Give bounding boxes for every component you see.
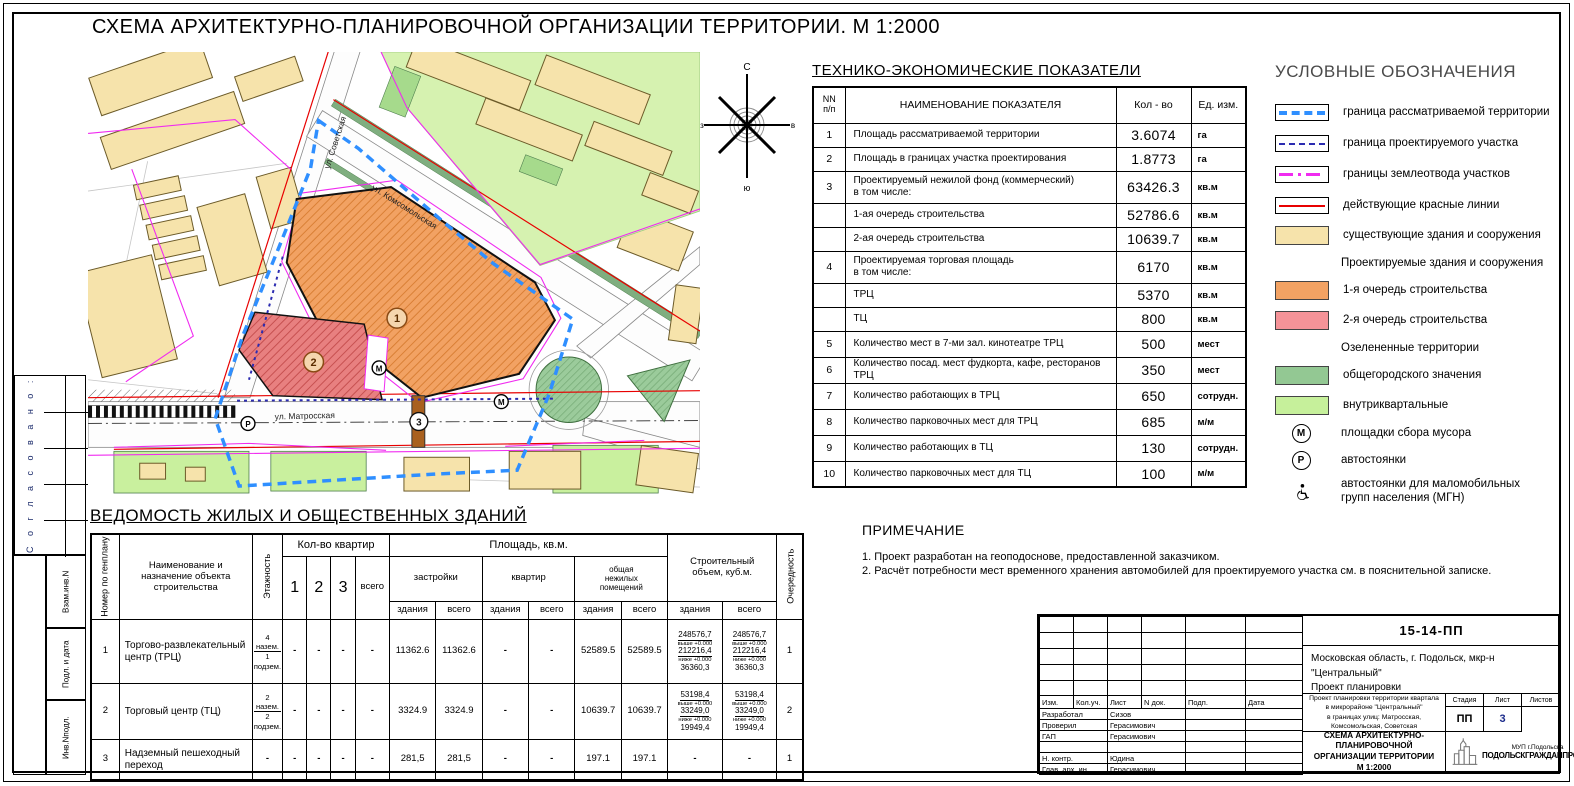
vedomost-table: Номер по генплану Наименование и назначе… [90,533,804,781]
stage-value: ПП [1446,707,1484,732]
sheet-number: 3 [1484,707,1522,732]
existing-buildings-swatch [1275,226,1329,245]
svg-text:2: 2 [311,357,317,369]
svg-text:1: 1 [394,313,400,325]
tep-col-name: НАИМЕНОВАНИЕ ПОКАЗАТЕЛЯ [845,87,1116,123]
plot-boundary-swatch [1275,135,1329,152]
col-floors: Этажность [252,534,282,620]
svg-text:М: М [376,364,383,373]
vedomost-row: 3 Надземный пешеходный переход - ---- 28… [91,740,803,780]
stage-label: Стадия [1446,694,1484,707]
group-area: Площадь, кв.м. [389,534,667,556]
podl-data-box: Подл. и дата [46,628,86,700]
compass-north-label: С [743,62,750,73]
svg-text:М: М [498,398,505,407]
tep-row: 7Количество работающих в ТРЦ650сотрудн. [813,383,1246,409]
stamp-role-row [1040,742,1303,753]
approval-label: С о г л а с о в а н о : [14,376,45,554]
stamp-role-row: Н. контр.Юдина [1040,753,1303,764]
approval-box: С о г л а с о в а н о : [13,375,86,555]
legend-item: 1-я очередь строительства [1275,275,1567,306]
tep-row: 4Проектируемая торговая площадь в том чи… [813,251,1246,283]
sheet-label: Лист [1484,694,1522,707]
organization: МУП г.Подольска ПОДОЛЬСКГРАЖДАНПРОЕКТ [1446,732,1560,772]
group-flats: Кол-во квартир [283,534,390,556]
compass-east-label: в [791,121,795,130]
stage2-swatch [1275,311,1329,330]
sheet-name: СХЕМА АРХИТЕКТУРНО-ПЛАНИРОВОЧНОЙ ОРГАНИЗ… [1303,732,1446,772]
tep-row: 1-ая очередь строительства52786.6кв.м [813,203,1246,227]
stamp-role-row: ПроверилГерасимович [1040,720,1303,731]
org-name-line1: МУП г.Подольска [1482,744,1574,751]
railway [88,406,235,418]
svg-text:3: 3 [416,417,422,428]
legend-item: 2-я очередь строительства [1275,306,1567,335]
stamp-role-row: Глав. арх. ин.Герасимович [1040,764,1303,775]
waste-icon: М [372,361,386,375]
tep-col-num: NN п/п [813,87,845,123]
legend-item: Р автостоянки [1275,447,1567,474]
note-line: 2. Расчёт потребности мест временного хр… [862,564,1562,578]
title-block: Изм.Кол.уч. ЛистN док. Подп.Дата Разрабо… [1037,614,1560,774]
tep-row: 9Количество работающих в ТЦ130сотрудн. [813,435,1246,461]
drawing-sheet: { "sheet": {"title": "СХЕМА АРХИТЕКТУРНО… [0,0,1574,786]
vedomost-title: ВЕДОМОСТЬ ЖИЛЫХ И ОБЩЕСТВЕННЫХ ЗДАНИЙ [90,506,527,526]
tep-row: 3Проектируемый нежилой фонд (коммерчески… [813,171,1246,203]
green-city-swatch [1275,366,1329,385]
margin-empty-column [13,555,46,775]
tep-row: ТРЦ5370кв.м [813,283,1246,307]
parking-icon: Р [241,417,255,431]
approval-grid [44,376,85,554]
doc-number: 15-14-ПП [1303,616,1560,646]
territory-boundary-swatch [1275,104,1329,121]
legend-item: действующие красные линии [1275,190,1567,221]
legend-group-header: Проектируемые здания и сооружения [1275,250,1567,275]
tep-row: ТЦ800кв.м [813,307,1246,331]
group-volume: Строительный объем, куб.м. [668,534,777,602]
tep-table: NN п/п НАИМЕНОВАНИЕ ПОКАЗАТЕЛЯ Кол - во … [812,86,1247,488]
sheets-total [1522,707,1560,732]
legend-item: внутриквартальные [1275,391,1567,420]
col-priority: Очередность [777,534,803,620]
tep-row: 10Количество парковочных мест для ТЦ100м… [813,461,1246,487]
legend-item: М площадки сбора мусора [1275,420,1567,447]
marker-bridge: 3 [410,413,428,431]
legend-title: УСЛОВНЫЕ ОБОЗНАЧЕНИЯ [1275,62,1567,82]
tep-row: 2-ая очередь строительства10639.7кв.м [813,227,1246,251]
waste-icon: М [494,395,508,409]
tep-row: 5Количество мест в 7-ми зал. кинотеатре … [813,331,1246,357]
legend-item: общегородского значения [1275,360,1567,391]
org-name-line2: ПОДОЛЬСКГРАЖДАНПРОЕКТ [1482,751,1574,760]
tep-col-unit: Ед. изм. [1191,87,1246,123]
red-lines-swatch [1275,197,1329,214]
vedomost-header-row: Номер по генплану Наименование и назначе… [91,534,803,556]
street-label-matrosskaya: ул. Матросская [275,410,335,422]
svg-text:Р: Р [245,420,251,429]
marker-stage1: 1 [387,308,407,328]
sheet-title: СХЕМА АРХИТЕКТУРНО-ПЛАНИРОВОЧНОЙ ОРГАНИЗ… [92,16,940,39]
tep-col-qty: Кол - во [1116,87,1191,123]
legend-group-header: Озелененные территории [1275,335,1567,360]
vedomost-row: 1 Торгово-развлекательный центр (ТРЦ) 4 … [91,620,803,684]
tep-title: ТЕХНИКО-ЭКОНОМИЧЕСКИЕ ПОКАЗАТЕЛИ [812,62,1141,79]
sheets-label: Листов [1522,694,1560,707]
note-title: ПРИМЕЧАНИЕ [862,522,1562,538]
compass-west-label: з [700,121,704,130]
project-location: Московская область, г. Подольск, мкр-н "… [1303,646,1560,694]
site-plan-map: 1 2 3 М М Р ул. Советская ул. Комсомольс… [88,52,700,497]
note-section: ПРИМЕЧАНИЕ 1. Проект разработан на геопо… [862,522,1562,578]
compass-rose: С в з ю [700,60,795,195]
note-line: 1. Проект разработан на геоподоснове, пр… [862,550,1562,564]
landplot-swatch [1275,166,1329,183]
legend-item: граница рассматриваемой территории [1275,97,1567,128]
legend-item: существующие здания и сооружения [1275,221,1567,250]
parking-icon: Р [1275,451,1327,470]
tep-row: 6Количество посад. мест фудкорта, кафе, … [813,357,1246,383]
vedomost-row: 2 Торговый центр (ТЦ) 2 назем.2 подзем. … [91,684,803,740]
tep-row: 2Площадь в границах участка проектирован… [813,147,1246,171]
compass-south-label: ю [744,183,751,193]
stamp-role-row: ГАПГерасимович [1040,731,1303,742]
legend-item: границы землеотвода участков [1275,159,1567,190]
vzam-inv-box: Взам.инв.N [46,555,86,628]
green-local-swatch [1275,396,1329,415]
stamp-cols-row: Изм.Кол.уч. ЛистN док. Подп.Дата [1040,696,1303,709]
legend-item: граница проектируемого участка [1275,128,1567,159]
stamp-right: 15-14-ПП Московская область, г. Подольск… [1302,616,1559,772]
waste-icon: М [1275,424,1327,443]
tep-row: 8Количество парковочных мест для ТРЦ685м… [813,409,1246,435]
project-description: Проект планировки территории квартала в … [1303,694,1446,732]
org-logo-icon [1450,735,1480,769]
inv-podl-box: Инв.Nподл. [46,700,86,775]
marker-stage2: 2 [304,352,324,372]
stamp-signature-grid: Изм.Кол.уч. ЛистN док. Подп.Дата Разрабо… [1039,616,1303,775]
legend-item: автостоянки для маломобильных групп насе… [1275,474,1567,510]
tep-row: 1Площадь рассматриваемой территории3.607… [813,123,1246,147]
stage1-swatch [1275,281,1329,300]
col-genplan-num: Номер по генплану [91,534,119,620]
wheelchair-icon [1275,483,1327,501]
tep-header-row: NN п/п НАИМЕНОВАНИЕ ПОКАЗАТЕЛЯ Кол - во … [813,87,1246,123]
col-object-name: Наименование и назначение объекта строит… [119,534,252,620]
stamp-role-row: РазработалСизов [1040,709,1303,720]
legend: УСЛОВНЫЕ ОБОЗНАЧЕНИЯ граница рассматрива… [1275,62,1567,510]
